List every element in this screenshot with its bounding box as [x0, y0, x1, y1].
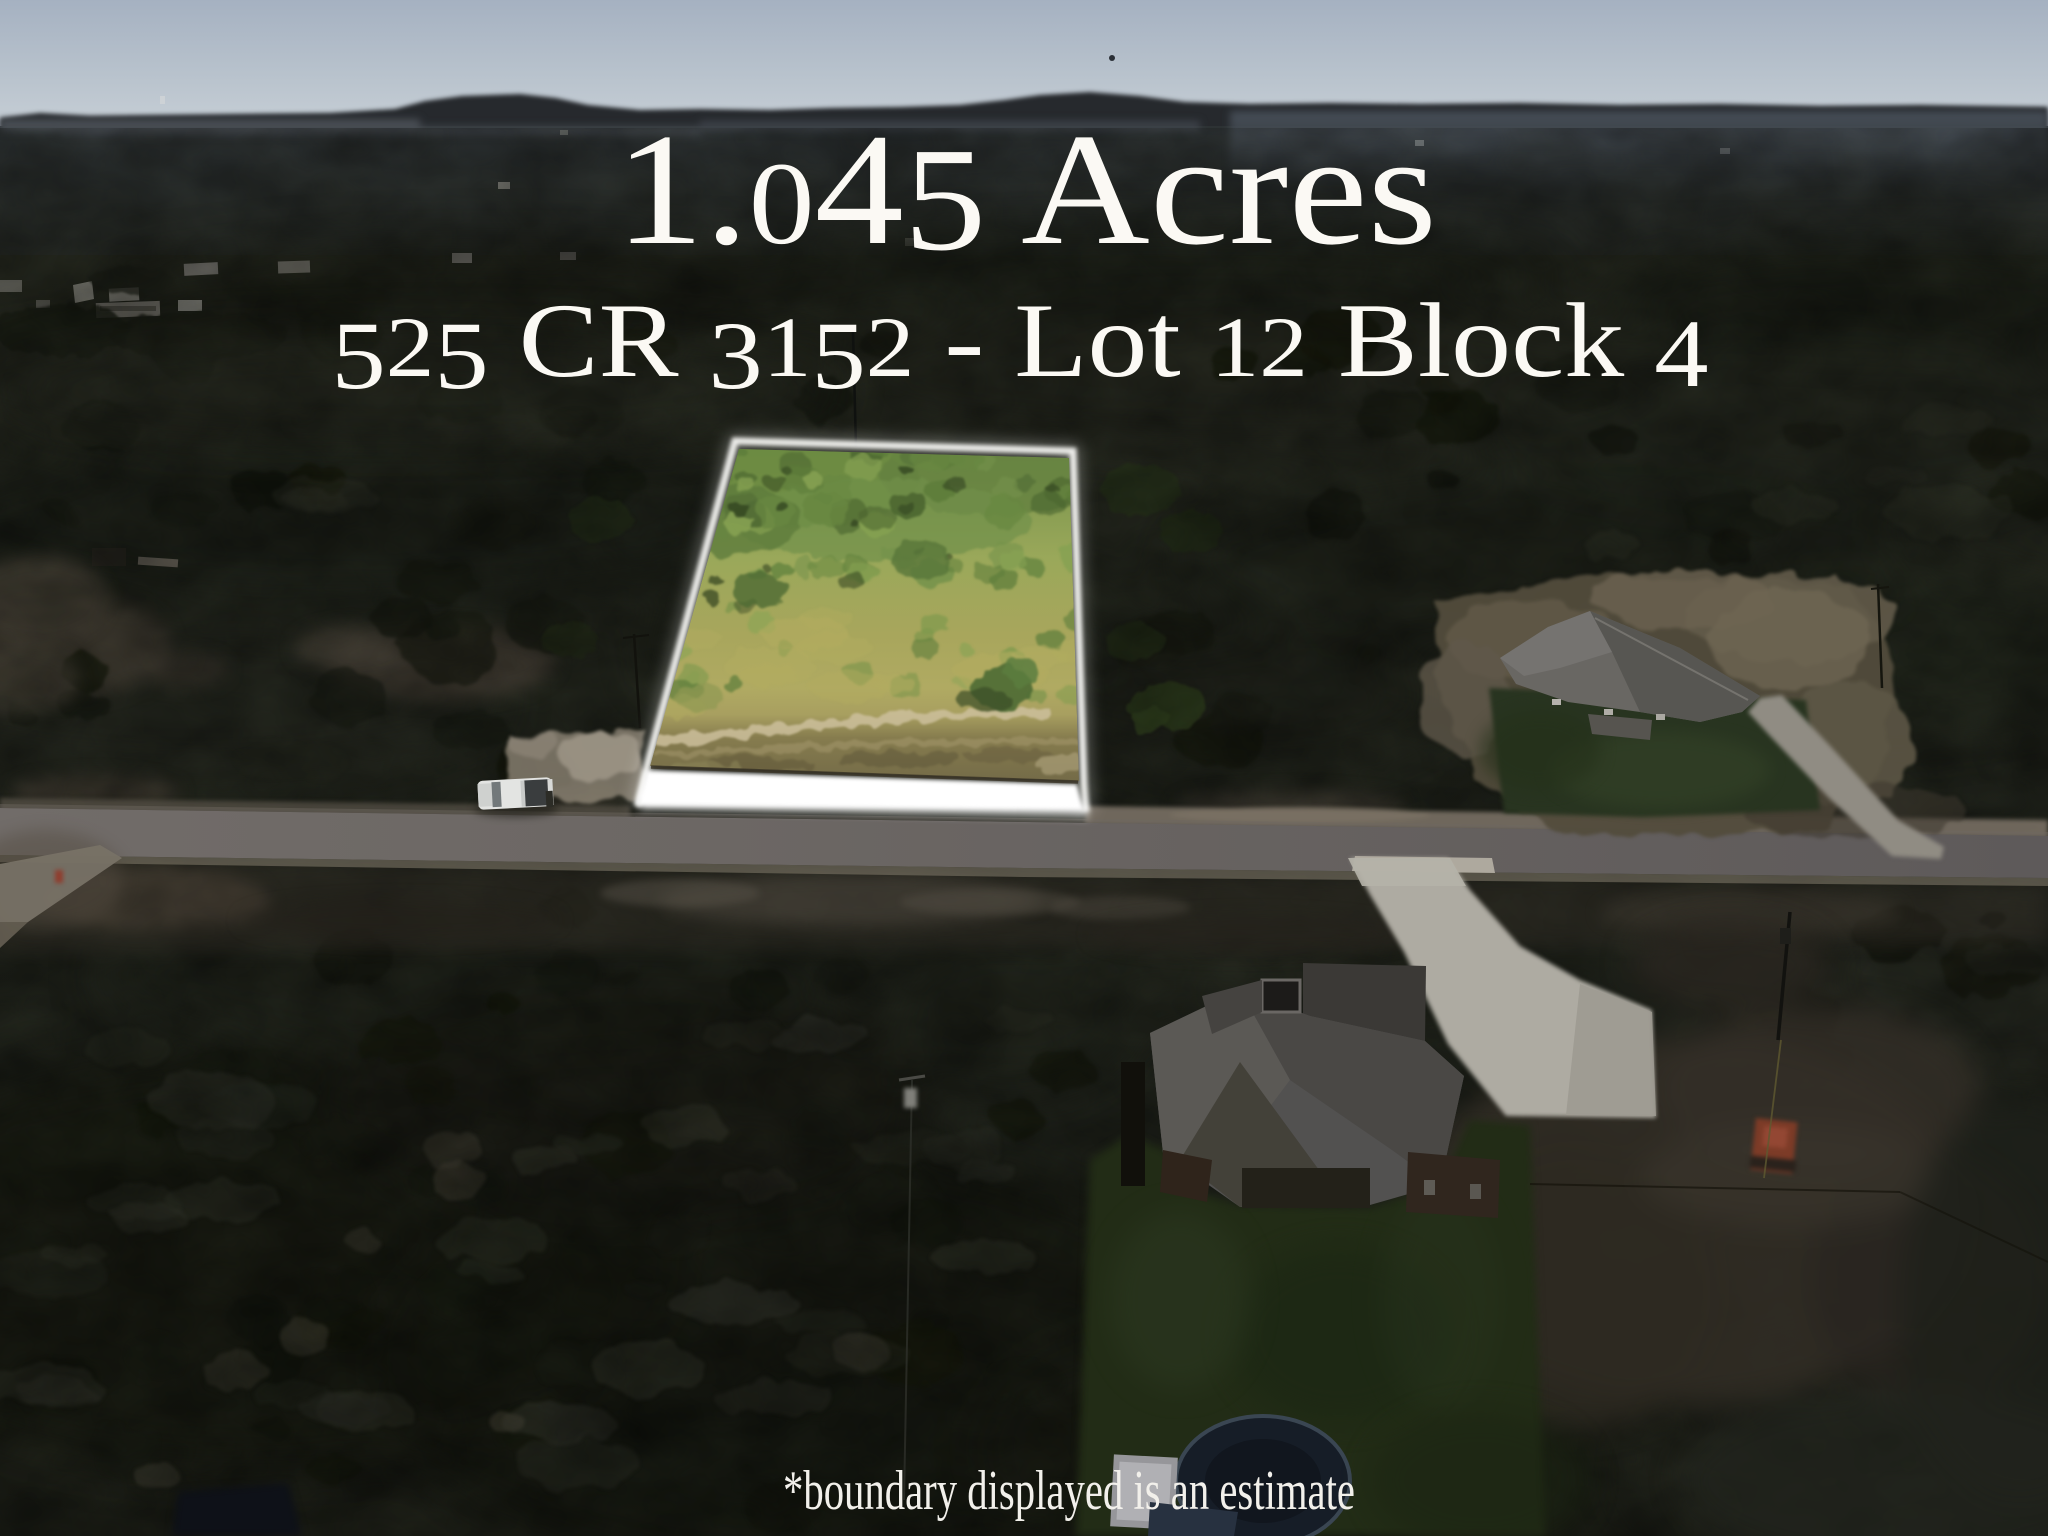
svg-text:*boundary displayed is an esti: *boundary displayed is an estimate	[783, 1460, 1355, 1522]
svg-text:1.045 Acres: 1.045 Acres	[615, 100, 1437, 282]
svg-text:525 CR 3152 - Lot 12 Block 4: 525 CR 3152 - Lot 12 Block 4	[332, 282, 1709, 409]
